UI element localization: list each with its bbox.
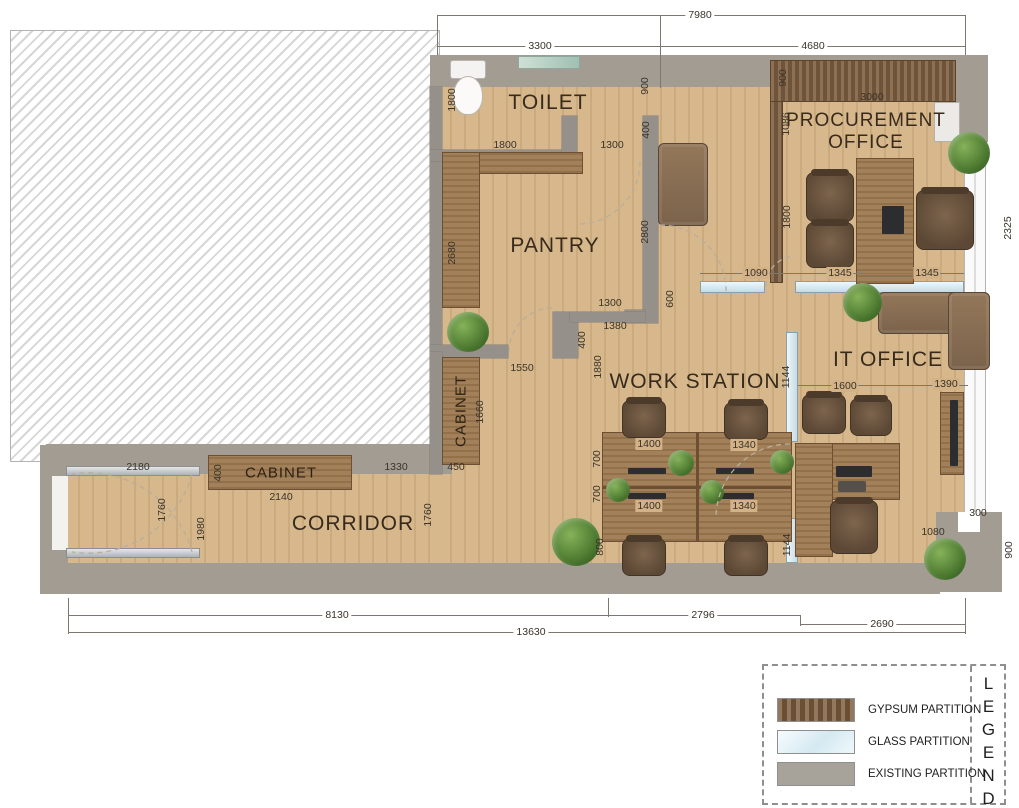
dim-1300-toilet: 1300: [600, 139, 623, 151]
dim-600-pantry: 600: [664, 290, 676, 308]
ws-chair-2: [724, 402, 768, 440]
dim-800: 800: [594, 538, 606, 556]
legend-separator: [970, 666, 972, 803]
ext-line-b: [660, 15, 661, 88]
dim-1760-left: 1760: [156, 498, 168, 521]
dim-2690: 2690: [867, 618, 896, 630]
dim-1980: 1980: [195, 517, 207, 540]
dim-1380: 1380: [603, 320, 626, 332]
room-label-pantry: PANTRY: [510, 234, 599, 258]
dim-1080: 1080: [921, 526, 944, 538]
ext-line-c: [965, 15, 966, 55]
dim-2800-pantry: 2800: [639, 220, 651, 243]
procurement-plant: [948, 132, 990, 174]
dim-900-right: 900: [1003, 541, 1015, 559]
ext-line-a: [437, 15, 438, 55]
pantry-side-sofa: [658, 143, 708, 226]
dim-300: 300: [969, 507, 987, 519]
toilet-shelf: [518, 56, 580, 69]
dim-1400-bottom: 1400: [635, 500, 662, 512]
dim-1390: 1390: [932, 378, 959, 390]
legend-title: LEGENDS: [978, 674, 998, 808]
legend-label-glass: GLASS PARTITION: [868, 736, 970, 748]
dim-2180: 2180: [126, 461, 149, 473]
corridor-plant: [552, 518, 600, 566]
dim-1760-right: 1760: [422, 503, 434, 526]
dim-1144-bottom: 1144: [781, 534, 793, 557]
procurement-monitor: [882, 206, 904, 234]
room-label-procurement-line2: OFFICE: [786, 132, 946, 154]
hatched-area: [10, 30, 440, 462]
dim-700-b: 700: [591, 485, 603, 503]
dim-2325-right: 2325: [1002, 216, 1014, 239]
it-chair-2: [850, 398, 892, 436]
ws-chair-4: [724, 538, 768, 576]
dim-3000-cabinet: 3000: [860, 91, 883, 103]
dim-900-toilet: 900: [639, 77, 651, 95]
desk-divider-horizontal: [603, 486, 791, 489]
dim-700-a: 700: [591, 450, 603, 468]
room-label-corridor: CORRIDOR: [292, 512, 414, 536]
dim-4680: 4680: [798, 40, 827, 52]
dim-1300-pantry: 1300: [598, 297, 621, 309]
room-label-cabinet-pantry: CABINET: [453, 375, 470, 447]
ws-plant-2: [770, 450, 794, 474]
dim-1330: 1330: [384, 461, 407, 473]
dim-2796: 2796: [688, 609, 717, 621]
dim-13630: 13630: [513, 626, 548, 638]
ext-line-g: [965, 598, 966, 634]
room-label-work-station: WORK STATION: [609, 370, 780, 394]
it-plant-bottom: [924, 538, 966, 580]
dim-1090: 1090: [742, 267, 769, 279]
ext-line-d: [68, 598, 69, 634]
legend-label-existing: EXISTING PARTITION: [868, 768, 985, 780]
it-sofa-vertical: [948, 292, 990, 370]
dim-2140: 2140: [269, 491, 292, 503]
it-exec-chair: [830, 500, 878, 554]
dim-1340-top: 1340: [730, 439, 757, 451]
dim-1600: 1600: [831, 380, 858, 392]
workstation-desk-cluster: [602, 432, 792, 542]
legend-box: LEGENDS GYPSUM PARTITION GLASS PARTITION…: [762, 664, 1006, 805]
dim-8130: 8130: [322, 609, 351, 621]
procurement-guest-chair-1: [806, 172, 854, 222]
it-keyboard: [838, 481, 866, 492]
pantry-counter-left: [442, 152, 480, 308]
room-label-toilet: TOILET: [508, 91, 587, 115]
wall-cabinet-column: [430, 352, 442, 474]
dim-1800-toilet: 1800: [493, 139, 516, 151]
dim-1800-procurement: 1800: [781, 205, 793, 228]
ext-line-f: [800, 615, 801, 626]
ws-plant-1: [668, 450, 694, 476]
entry-door-leaf-bottom: [66, 548, 200, 558]
dim-1345-b: 1345: [913, 267, 940, 279]
wall-toilet-door-stub: [562, 116, 577, 154]
dim-1086: 1086: [780, 112, 792, 135]
wall-bottom: [40, 563, 940, 594]
it-desk-vertical: [795, 443, 833, 557]
it-tv-screen: [950, 400, 958, 466]
dim-1345-a: 1345: [826, 267, 853, 279]
dim-1400-top: 1400: [635, 438, 662, 450]
room-label-it-office: IT OFFICE: [833, 348, 943, 372]
procurement-guest-chair-2: [806, 222, 854, 268]
room-label-procurement-line1: PROCUREMENT: [786, 110, 946, 132]
ext-line-e: [608, 598, 609, 617]
entry-recess: [52, 476, 68, 550]
dim-400-corridor: 400: [212, 464, 224, 482]
dim-3300: 3300: [525, 40, 554, 52]
dim-2680-pantry: 2680: [446, 241, 458, 264]
dim-7980: 7980: [685, 9, 714, 21]
dim-900-procurement: 900: [777, 69, 789, 87]
legend-label-gypsum: GYPSUM PARTITION: [868, 704, 981, 716]
dim-400-toilet: 400: [640, 121, 652, 139]
legend-swatch-glass: [777, 730, 855, 754]
dim-1144-top: 1144: [780, 366, 792, 389]
ws-chair-1: [622, 400, 666, 438]
glass-partition-procurement-a: [700, 281, 765, 293]
room-label-cabinet-corridor: CABINET: [245, 465, 317, 482]
dim-450: 450: [447, 461, 465, 473]
ws-plant-3: [606, 478, 630, 502]
procurement-exec-chair: [916, 190, 974, 250]
dim-1340-bottom: 1340: [730, 500, 757, 512]
ws-monitor-3: [628, 493, 666, 499]
legend-swatch-existing: [777, 762, 855, 786]
ws-monitor-1: [628, 468, 666, 474]
dim-1880: 1880: [592, 355, 604, 378]
legend-swatch-gypsum: [777, 698, 855, 722]
it-chair-1: [802, 394, 846, 434]
dim-400-pantry: 400: [576, 331, 588, 349]
pantry-plant: [447, 312, 489, 352]
ws-plant-4: [700, 480, 724, 504]
ws-monitor-2: [716, 468, 754, 474]
ws-chair-3: [622, 538, 666, 576]
dim-1660: 1660: [474, 400, 486, 423]
dim-1800-toilet-left: 1800: [446, 88, 458, 111]
it-plant-top: [843, 283, 882, 322]
room-label-procurement: PROCUREMENT OFFICE: [786, 110, 946, 154]
it-monitor: [836, 466, 872, 477]
floor-plan: 7980 3300 4680 1800 900 1800 1300 400 90…: [0, 0, 1019, 808]
dim-1550: 1550: [510, 362, 533, 374]
wall-toilet-left: [430, 87, 442, 352]
